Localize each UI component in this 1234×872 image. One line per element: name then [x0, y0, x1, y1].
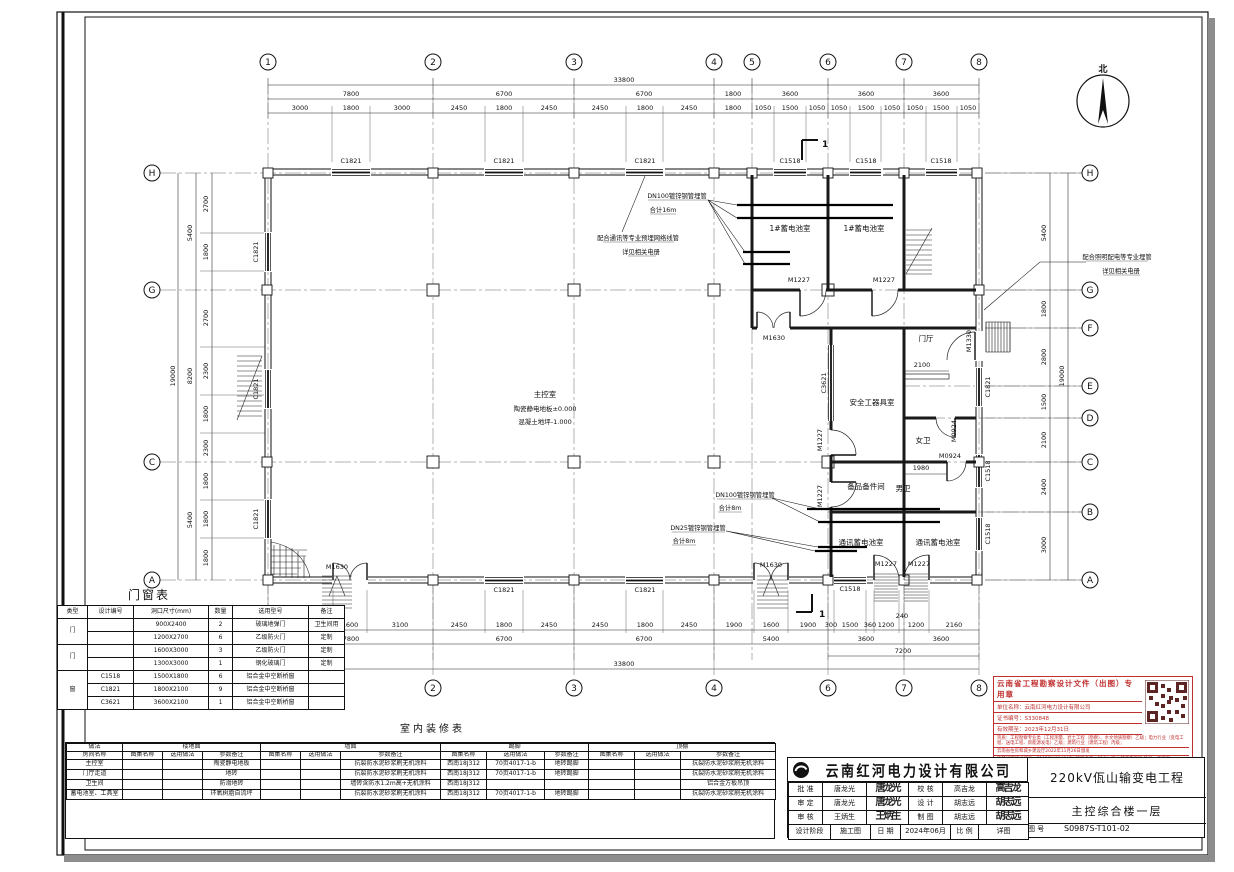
svg-text:3600: 3600 — [782, 90, 799, 98]
svg-text:M1630: M1630 — [326, 563, 348, 571]
table-row: 蓄电池室、工具室环氧树脂自流坪抗裂防水泥砂浆刷无机涂料西南18J31270页40… — [67, 790, 776, 800]
table-row: 门900X24002玻璃地弹门卫生间用 — [58, 619, 345, 632]
svg-text:7: 7 — [901, 58, 907, 68]
svg-text:1050: 1050 — [960, 104, 977, 112]
svg-text:1800: 1800 — [202, 550, 210, 567]
svg-text:240: 240 — [896, 612, 908, 620]
svg-text:1800: 1800 — [496, 104, 513, 112]
svg-text:陶瓷静电地板±0.000: 陶瓷静电地板±0.000 — [513, 404, 576, 413]
room-comm-battery-1: 通讯蓄电池室 — [839, 537, 884, 547]
svg-text:300: 300 — [825, 621, 837, 629]
svg-text:E: E — [1087, 382, 1093, 392]
svg-text:4: 4 — [711, 684, 717, 694]
svg-text:8: 8 — [976, 684, 982, 694]
svg-text:C1518: C1518 — [839, 585, 860, 593]
svg-text:1050: 1050 — [809, 104, 826, 112]
room-spare-parts: 备品备件间 — [847, 481, 885, 491]
table-row: 审 定唐龙光唐龙光 设 计胡志远胡志远 — [789, 797, 1029, 811]
svg-text:1980: 1980 — [913, 464, 930, 472]
svg-text:1500: 1500 — [1040, 394, 1048, 411]
svg-text:2450: 2450 — [592, 104, 609, 112]
svg-text:A: A — [1087, 576, 1094, 586]
drawing-sheet: 33800 7800670067001800360036003600 30001… — [0, 0, 1234, 872]
signature: 唐龙光 — [876, 783, 900, 794]
svg-text:3100: 3100 — [392, 621, 409, 629]
svg-text:H: H — [149, 169, 156, 179]
svg-text:2450: 2450 — [681, 621, 698, 629]
svg-text:C: C — [149, 458, 155, 468]
svg-text:M1630: M1630 — [763, 334, 785, 342]
stage-value: 施工图 — [831, 825, 871, 840]
date-value: 2024年06月 — [901, 825, 951, 840]
svg-text:2: 2 — [430, 58, 436, 68]
svg-text:3600: 3600 — [858, 90, 875, 98]
svg-text:2450: 2450 — [681, 104, 698, 112]
svg-text:1200: 1200 — [908, 621, 925, 629]
section-label-top: 1 — [822, 140, 828, 150]
svg-text:D: D — [1087, 414, 1094, 424]
page-shadow-bottom — [64, 855, 1215, 862]
svg-text:H: H — [1087, 169, 1094, 179]
scale-label: 比 例 — [951, 825, 979, 840]
finish-table-title: 室内装修表 — [400, 720, 465, 735]
svg-text:3600: 3600 — [933, 90, 950, 98]
svg-text:C1821: C1821 — [340, 157, 361, 165]
company-name: 云南红河电力设计有限公司 — [810, 759, 1027, 781]
svg-text:2800: 2800 — [1040, 349, 1048, 366]
svg-text:1800: 1800 — [202, 406, 210, 423]
svg-text:2400: 2400 — [1040, 479, 1048, 496]
svg-text:4: 4 — [711, 58, 717, 68]
svg-text:DN25镀锌钢管埋管: DN25镀锌钢管埋管 — [670, 523, 725, 532]
table-row: 批 准唐龙光唐龙光 校 核高吉龙高吉龙 — [789, 783, 1029, 797]
svg-text:1: 1 — [265, 58, 271, 68]
svg-text:详见相关电册: 详见相关电册 — [1102, 266, 1140, 275]
svg-text:合计16m: 合计16m — [650, 205, 677, 214]
company-logo-icon — [792, 761, 810, 779]
svg-text:G: G — [1087, 286, 1094, 296]
finish-table-box: 做法 楼地面 墙面 踢脚 顶棚 房间名称 图集名称选用做法参数备注 图集名称选用… — [65, 742, 775, 839]
svg-text:混凝土地坪-1.000: 混凝土地坪-1.000 — [518, 417, 571, 426]
table-row: 1300X30001钢化玻璃门定制 — [58, 658, 345, 671]
project-name-cell: 220kV佤山输变电工程 — [1028, 758, 1206, 798]
date-label: 日 期 — [871, 825, 901, 840]
svg-text:C1821: C1821 — [493, 157, 514, 165]
svg-text:1600: 1600 — [763, 621, 780, 629]
svg-text:7200: 7200 — [895, 647, 912, 655]
svg-text:1800: 1800 — [637, 104, 654, 112]
svg-text:配合照明配电等专业埋管: 配合照明配电等专业埋管 — [1082, 252, 1151, 261]
table-row: 1200X27006乙级防火门定制 — [58, 632, 345, 645]
svg-text:合计8m: 合计8m — [673, 536, 696, 545]
company-row: 云南红河电力设计有限公司 — [788, 758, 1028, 782]
svg-text:33800: 33800 — [614, 660, 635, 668]
svg-text:1500: 1500 — [842, 621, 859, 629]
svg-text:B: B — [1087, 508, 1093, 518]
svg-text:2160: 2160 — [946, 621, 963, 629]
svg-text:3000: 3000 — [292, 104, 309, 112]
door-window-table: 类型设计编号洞口尺寸(mm)数量选用型号备注 门900X24002玻璃地弹门卫生… — [57, 605, 345, 710]
section-label-bottom: 1 — [819, 610, 825, 620]
svg-text:2700: 2700 — [202, 310, 210, 327]
svg-text:2300: 2300 — [202, 363, 210, 380]
svg-text:3600: 3600 — [933, 635, 950, 643]
page-shadow-right — [1208, 18, 1215, 861]
stamp-title: 云南省工程勘察设计文件（出图）专用章 — [994, 677, 1142, 702]
svg-text:C1518: C1518 — [779, 157, 800, 165]
svg-text:2450: 2450 — [451, 621, 468, 629]
svg-text:F: F — [1087, 324, 1092, 334]
drawing-title-cell: 主控综合楼一层 — [1028, 798, 1206, 824]
svg-text:1500: 1500 — [933, 104, 950, 112]
svg-text:2450: 2450 — [541, 621, 558, 629]
signature: 王炳生 — [876, 811, 900, 822]
svg-text:6700: 6700 — [496, 90, 513, 98]
drawing-number-label: 图 号 — [1028, 824, 1064, 839]
table-row: 主控室陶瓷静电地板抗裂防水泥砂浆刷无机涂料西南18J31270页4017-1-b… — [67, 760, 776, 770]
svg-text:19000: 19000 — [1058, 366, 1066, 387]
svg-text:5400: 5400 — [1040, 225, 1048, 242]
table-row: C18211800X21009铝合金中空断桥窗 — [58, 684, 345, 697]
room-main-control: 主控室 — [534, 389, 557, 399]
svg-text:配合通讯等专业预埋网络线管: 配合通讯等专业预埋网络线管 — [597, 233, 679, 242]
room-wc-male: 男卫 — [896, 484, 911, 493]
svg-text:19000: 19000 — [169, 366, 177, 387]
svg-text:C1821: C1821 — [252, 508, 260, 529]
dim-total-top: 33800 — [614, 76, 635, 84]
svg-text:1050: 1050 — [907, 104, 924, 112]
svg-text:5400: 5400 — [186, 512, 194, 529]
svg-text:1800: 1800 — [637, 621, 654, 629]
svg-text:C1518: C1518 — [984, 523, 992, 544]
svg-text:5400: 5400 — [186, 225, 194, 242]
table-row: 门厅走道地砖抗裂防水泥砂浆刷无机涂料西南18J31270页4017-1-b地砖踢… — [67, 770, 776, 780]
svg-text:2700: 2700 — [202, 196, 210, 213]
svg-text:C1821: C1821 — [493, 586, 514, 594]
svg-text:2100: 2100 — [1040, 432, 1048, 449]
svg-text:M1227: M1227 — [875, 560, 897, 568]
finish-table: 做法 楼地面 墙面 踢脚 顶棚 房间名称 图集名称选用做法参数备注 图集名称选用… — [66, 743, 776, 800]
table-row: C36213600X21001铝合金中空断桥窗 — [58, 697, 345, 710]
approval-rows: 批 准唐龙光唐龙光 校 核高吉龙高吉龙 审 定唐龙光唐龙光 设 计胡志远胡志远 … — [788, 782, 1028, 824]
svg-text:合计8m: 合计8m — [719, 503, 742, 512]
table-row: 门1600X30003乙级防火门定制 — [58, 645, 345, 658]
drawing-number-row: 图 号 S0987S-T101-02 — [1028, 824, 1206, 839]
qr-code-icon — [1145, 680, 1189, 724]
svg-text:M0924: M0924 — [950, 420, 958, 442]
svg-text:M1330: M1330 — [965, 330, 973, 352]
svg-text:3: 3 — [571, 684, 577, 694]
svg-text:1050: 1050 — [755, 104, 772, 112]
drawing-number: S0987S-T101-02 — [1064, 824, 1206, 839]
detail-label: 详图 — [979, 825, 1029, 840]
svg-text:C: C — [1087, 458, 1093, 468]
svg-text:1800: 1800 — [202, 244, 210, 261]
signature: 胡志远 — [996, 797, 1020, 808]
certification-stamp: 云南省工程勘察设计文件（出图）专用章 单位名称：云南红河电力设计有限公司 证书编… — [993, 676, 1193, 760]
svg-text:6700: 6700 — [636, 635, 653, 643]
svg-text:3600: 3600 — [858, 635, 875, 643]
room-lobby: 门厅 — [919, 334, 934, 343]
svg-text:M1227: M1227 — [788, 276, 810, 284]
room-battery-2: 1#蓄电池室 — [843, 223, 885, 233]
svg-text:2450: 2450 — [592, 621, 609, 629]
table-row: 窗C15181500X18006铝合金中空断桥窗 — [58, 671, 345, 684]
svg-text:1800: 1800 — [496, 621, 513, 629]
svg-text:1050: 1050 — [831, 104, 848, 112]
svg-text:G: G — [149, 286, 156, 296]
svg-text:1800: 1800 — [202, 511, 210, 528]
svg-text:C3621: C3621 — [820, 372, 828, 393]
drawing-title: 主控综合楼一层 — [1072, 803, 1163, 819]
svg-text:M0924: M0924 — [939, 452, 961, 460]
svg-text:C1821: C1821 — [252, 378, 260, 399]
table-row: 审 核王炳生王炳生 制 图胡志远胡志远 — [789, 811, 1029, 825]
svg-text:1900: 1900 — [800, 621, 817, 629]
svg-text:3: 3 — [571, 58, 577, 68]
svg-text:C1518: C1518 — [984, 460, 992, 481]
svg-text:C1821: C1821 — [252, 241, 260, 262]
svg-text:6: 6 — [825, 58, 831, 68]
signature: 胡志远 — [996, 811, 1020, 822]
stage-label: 设计阶段 — [789, 825, 831, 840]
svg-text:5400: 5400 — [763, 635, 780, 643]
svg-text:1800: 1800 — [1040, 301, 1048, 318]
svg-text:M1227: M1227 — [816, 429, 824, 451]
svg-text:7: 7 — [901, 684, 907, 694]
svg-text:8: 8 — [976, 58, 982, 68]
svg-text:360: 360 — [864, 621, 876, 629]
svg-text:1500: 1500 — [782, 104, 799, 112]
svg-text:6: 6 — [825, 684, 831, 694]
svg-text:1800: 1800 — [725, 90, 742, 98]
svg-text:M1227: M1227 — [908, 560, 930, 568]
bottom-row-left: 设计阶段 施工图 日 期 2024年06月 比 例 详图 — [788, 824, 1028, 839]
door-window-table-title: 门窗表 — [128, 586, 170, 603]
svg-text:2450: 2450 — [541, 104, 558, 112]
room-safety-tools: 安全工器具室 — [850, 397, 895, 407]
room-wc-female: 女卫 — [916, 435, 931, 445]
svg-text:DN100镀锌钢管埋管: DN100镀锌钢管埋管 — [647, 191, 706, 200]
title-block: 云南红河电力设计有限公司 批 准唐龙光唐龙光 校 核高吉龙高吉龙 审 定唐龙光唐… — [787, 757, 1205, 838]
table-row: 卫生间防滑地砖墙砖含防水1.2m高+无机涂料西南18J312铝合金方板吊顶 — [67, 780, 776, 790]
signature: 唐龙光 — [876, 797, 900, 808]
svg-text:A: A — [149, 576, 156, 586]
svg-text:3000: 3000 — [394, 104, 411, 112]
svg-text:C1518: C1518 — [930, 157, 951, 165]
svg-text:8200: 8200 — [186, 368, 194, 385]
svg-text:M1227: M1227 — [873, 276, 895, 284]
svg-text:C1821: C1821 — [634, 586, 655, 594]
svg-text:2: 2 — [430, 684, 436, 694]
svg-text:5: 5 — [749, 58, 755, 68]
svg-text:详见相关电册: 详见相关电册 — [622, 247, 660, 256]
svg-text:DN100镀锌钢管埋管: DN100镀锌钢管埋管 — [715, 490, 774, 499]
svg-text:C1518: C1518 — [855, 157, 876, 165]
svg-text:1900: 1900 — [726, 621, 743, 629]
project-name: 220kV佤山输变电工程 — [1050, 769, 1184, 786]
svg-text:2450: 2450 — [451, 104, 468, 112]
svg-text:北: 北 — [1098, 63, 1107, 75]
svg-text:C1821: C1821 — [634, 157, 655, 165]
signature: 高吉龙 — [996, 783, 1020, 794]
svg-text:6700: 6700 — [636, 90, 653, 98]
svg-text:7800: 7800 — [343, 635, 360, 643]
svg-text:1050: 1050 — [884, 104, 901, 112]
svg-text:M1630: M1630 — [760, 561, 782, 569]
svg-text:2300: 2300 — [202, 440, 210, 457]
svg-text:7800: 7800 — [343, 90, 360, 98]
svg-text:1200: 1200 — [878, 621, 895, 629]
room-battery-1: 1#蓄电池室 — [769, 223, 811, 233]
svg-text:1500: 1500 — [858, 104, 875, 112]
svg-text:2100: 2100 — [914, 361, 931, 369]
svg-text:C1821: C1821 — [984, 376, 992, 397]
svg-text:6700: 6700 — [496, 635, 513, 643]
svg-text:M1227: M1227 — [816, 485, 824, 507]
svg-text:3000: 3000 — [1040, 537, 1048, 554]
svg-text:1800: 1800 — [343, 104, 360, 112]
svg-text:1800: 1800 — [725, 104, 742, 112]
room-comm-battery-2: 通讯蓄电池室 — [916, 537, 961, 547]
svg-text:1800: 1800 — [202, 473, 210, 490]
